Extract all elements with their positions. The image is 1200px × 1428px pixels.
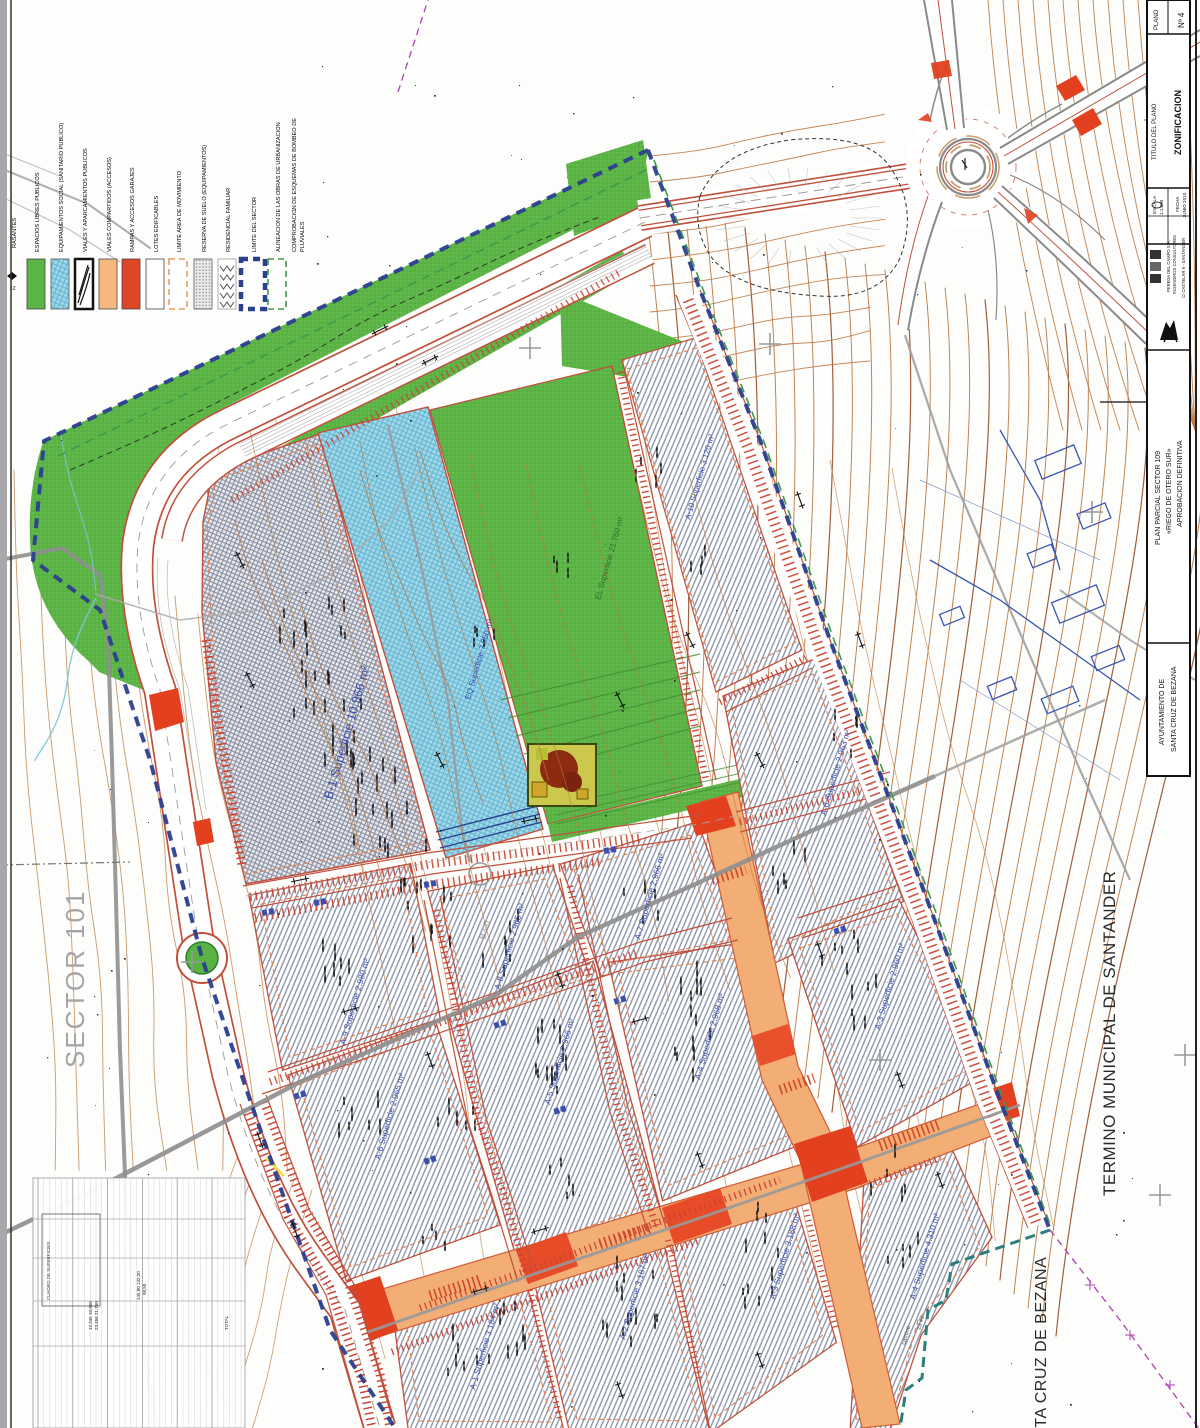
svg-text:SANTA CRUZ DE BEZANA: SANTA CRUZ DE BEZANA	[1033, 1257, 1050, 1428]
svg-text:CUADRO DE SUPERFICIES: CUADRO DE SUPERFICIES	[46, 1242, 51, 1300]
svg-text:SANTA CRUZ DE BEZANA: SANTA CRUZ DE BEZANA	[1171, 666, 1178, 752]
svg-text:RESERVA DE SUELO (EQUIPAMIENTO: RESERVA DE SUELO (EQUIPAMIENTOS)	[202, 145, 208, 252]
svg-text:ESCALA: ESCALA	[1152, 195, 1157, 214]
svg-text:VIALES COMPARTIDOS (ACCESOS): VIALES COMPARTIDOS (ACCESOS)	[107, 157, 113, 252]
svg-text:JUNIO 2010: JUNIO 2010	[1182, 192, 1187, 218]
svg-text:TITULO DEL PLANO: TITULO DEL PLANO	[1152, 103, 1158, 160]
svg-text:PLAN PARCIAL SECTOR 109: PLAN PARCIAL SECTOR 109	[1155, 451, 1162, 545]
svg-text:23.456 21.760: 23.456 21.760	[94, 1301, 99, 1330]
svg-text:ESPACIOS LIBRES PUBLICOS: ESPACIOS LIBRES PUBLICOS	[35, 172, 41, 252]
svg-text:12.345 10.966: 12.345 10.966	[88, 1301, 93, 1330]
svg-text:«RIEGO DE OTERO SUR»: «RIEGO DE OTERO SUR»	[1166, 448, 1173, 534]
svg-text:145,80 132,20: 145,80 132,20	[136, 1271, 141, 1300]
svg-text:ZONIFICACION: ZONIFICACION	[1173, 90, 1183, 155]
svg-text:APROBACION DEFINITIVA: APROBACION DEFINITIVA	[1177, 440, 1184, 527]
svg-text:FECHA: FECHA	[1175, 195, 1180, 212]
svg-text:VIALES Y APARCAMIENTOS PUBLICO: VIALES Y APARCAMIENTOS PUBLICOS	[83, 148, 89, 252]
svg-text:C/ CASTELAR 9 - SANTANDER: C/ CASTELAR 9 - SANTANDER	[1181, 238, 1186, 298]
svg-text:EQUIPAMIENTOS SOCIAL (SANITARI: EQUIPAMIENTOS SOCIAL (SANITARIO PUBLICO)	[59, 123, 65, 252]
svg-text:PLUVIALES: PLUVIALES	[300, 221, 306, 252]
svg-text:AYUNTAMIENTO DE: AYUNTAMIENTO DE	[1159, 679, 1166, 745]
svg-text:RESIDENCIAL FAMILIAR: RESIDENCIAL FAMILIAR	[226, 188, 232, 252]
svg-text:SECTOR 101: SECTOR 101	[60, 890, 90, 1068]
svg-text:RASANTES: RASANTES	[12, 218, 18, 248]
svg-text:LIMITE AREA DE MOVIMIENTO: LIMITE AREA DE MOVIMIENTO	[177, 170, 183, 252]
svg-text:COMPROBACION DE ESQUEMAS DE BO: COMPROBACION DE ESQUEMAS DE BOMBEO DE	[292, 118, 298, 252]
svg-text:PLANO: PLANO	[1154, 9, 1160, 30]
svg-text:RAMPAS Y ACCESOS GARAJES: RAMPAS Y ACCESOS GARAJES	[130, 167, 136, 252]
svg-text:TOTAL: TOTAL	[224, 1315, 229, 1330]
svg-text:TERMINO MUNICIPAL DE SANTANDER: TERMINO MUNICIPAL DE SANTANDER	[1100, 871, 1119, 1196]
svg-text:PEREDA DEL CAMPO S.A.: PEREDA DEL CAMPO S.A.	[1166, 240, 1171, 292]
svg-text:98,50: 98,50	[142, 1283, 147, 1295]
svg-text:INGENIEROS CONSULTORES: INGENIEROS CONSULTORES	[1172, 235, 1177, 294]
svg-text:LOTES EDIFICABLES: LOTES EDIFICABLES	[154, 195, 160, 252]
svg-text:ALINEACION DE LAS OBRAS DE URB: ALINEACION DE LAS OBRAS DE URBANIZACION	[276, 122, 282, 252]
svg-text:Nº 4: Nº 4	[1177, 12, 1186, 28]
svg-text:LIMITE DEL SECTOR: LIMITE DEL SECTOR	[252, 197, 258, 252]
